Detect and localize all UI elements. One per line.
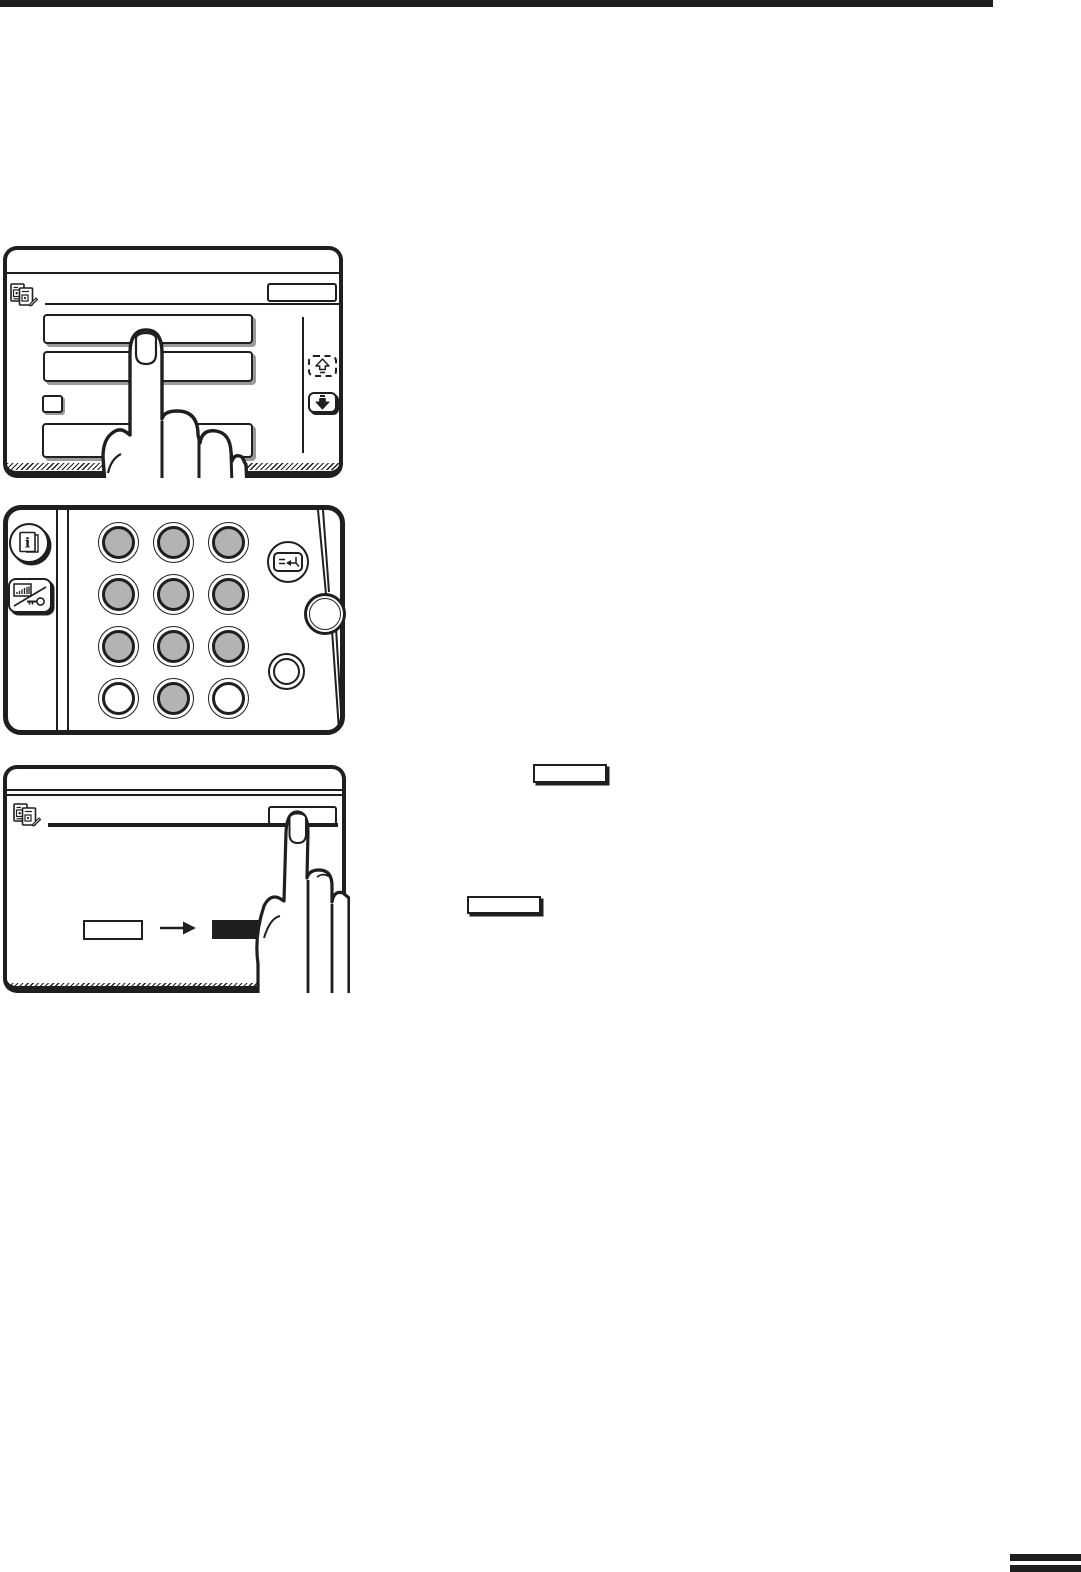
keypad-grid	[98, 522, 249, 719]
page-top-rule	[0, 0, 993, 7]
keypad-key-face	[212, 578, 245, 611]
keypad-key-1	[98, 522, 139, 563]
option-checkbox	[42, 395, 63, 413]
enter-key	[267, 541, 309, 583]
keypad-key-face	[157, 578, 190, 611]
scroll-down-icon	[312, 394, 333, 411]
pressing-hand-illustration-1	[95, 325, 250, 478]
keypad-key-face	[212, 682, 245, 715]
screen-bezel-line-a	[7, 789, 342, 791]
start-key-inner	[309, 598, 341, 630]
callout-key-box-2	[467, 896, 541, 914]
enter-key-face	[273, 552, 303, 572]
keypad-key-5	[153, 574, 194, 615]
document-copy-icon	[13, 803, 41, 827]
clear-key-inner	[273, 658, 300, 685]
keypad-key-4	[98, 574, 139, 615]
svg-text:i: i	[25, 536, 30, 552]
screen-bezel-line-b	[7, 794, 342, 796]
keypad-key-face	[102, 526, 135, 559]
corner-tab-bar-1	[1010, 1554, 1081, 1561]
keypad-key-3	[208, 522, 249, 563]
scroll-rail	[302, 317, 304, 453]
scroll-down-button	[308, 392, 337, 413]
keypad-key-11	[153, 678, 194, 719]
keypad-key-face	[102, 630, 135, 663]
state-before-box	[83, 920, 143, 940]
scroll-up-icon	[312, 357, 333, 375]
start-key	[304, 593, 346, 635]
screen-header-button	[267, 283, 337, 302]
callout-key-box-1	[533, 764, 607, 783]
keypad-key-2	[153, 522, 194, 563]
keypad-key-face	[102, 578, 135, 611]
keypad-key-face	[102, 682, 135, 715]
keypad-key-10	[98, 678, 139, 719]
keypad-key-face	[157, 682, 190, 715]
information-icon: i	[16, 530, 42, 556]
screen-header-divider	[45, 303, 340, 305]
figure-keypad: i	[3, 505, 345, 735]
keypad-key-face	[157, 526, 190, 559]
keypad-key-7	[98, 626, 139, 667]
keypad-key-face	[212, 630, 245, 663]
clear-key	[268, 653, 305, 690]
scroll-up-button	[308, 355, 337, 377]
account-counter-key	[8, 578, 52, 613]
document-copy-icon	[10, 283, 38, 307]
corner-tab-bar-2	[1010, 1565, 1081, 1572]
account-counter-icon	[13, 583, 47, 608]
screen-bezel-line	[7, 272, 339, 274]
keypad-key-6	[208, 574, 249, 615]
keypad-key-face	[212, 526, 245, 559]
keypad-key-face	[157, 630, 190, 663]
keypad-key-12	[208, 678, 249, 719]
transition-right-arrow-icon	[157, 919, 199, 937]
keypad-key-9	[208, 626, 249, 667]
enter-icon	[276, 555, 300, 569]
keypad-key-8	[153, 626, 194, 667]
information-key: i	[9, 523, 49, 563]
pressing-hand-illustration-2	[246, 806, 350, 993]
